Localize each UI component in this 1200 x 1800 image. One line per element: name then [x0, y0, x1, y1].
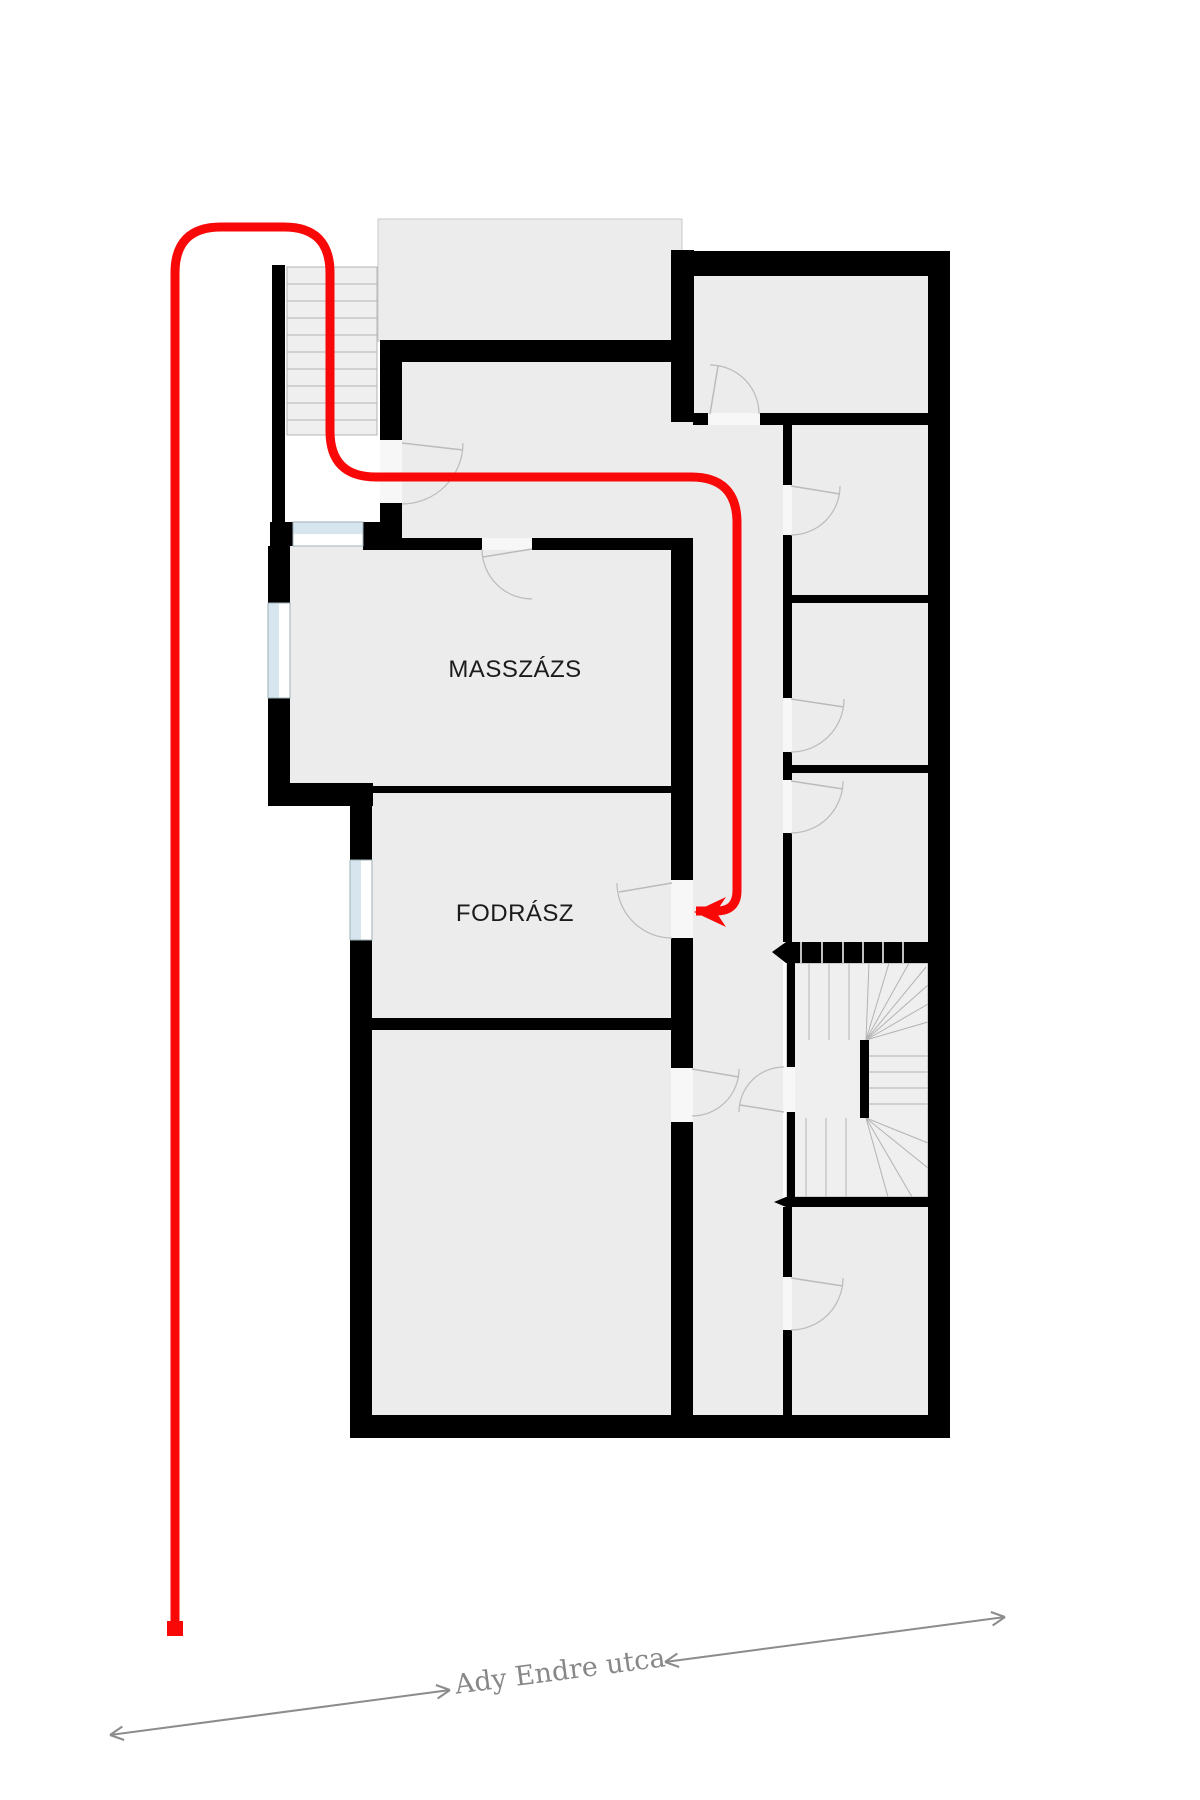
floor-plan-page: MASSZÁZS FODRÁSZ Ady Endre utca	[0, 0, 1200, 1800]
room-label-masszazs: MASSZÁZS	[448, 656, 581, 683]
floor-plan-drawing: MASSZÁZS FODRÁSZ Ady Endre utca	[0, 0, 1200, 1800]
room-label-fodrasz: FODRÁSZ	[456, 900, 574, 927]
street-name-label: Ady Endre utca	[452, 1642, 667, 1701]
